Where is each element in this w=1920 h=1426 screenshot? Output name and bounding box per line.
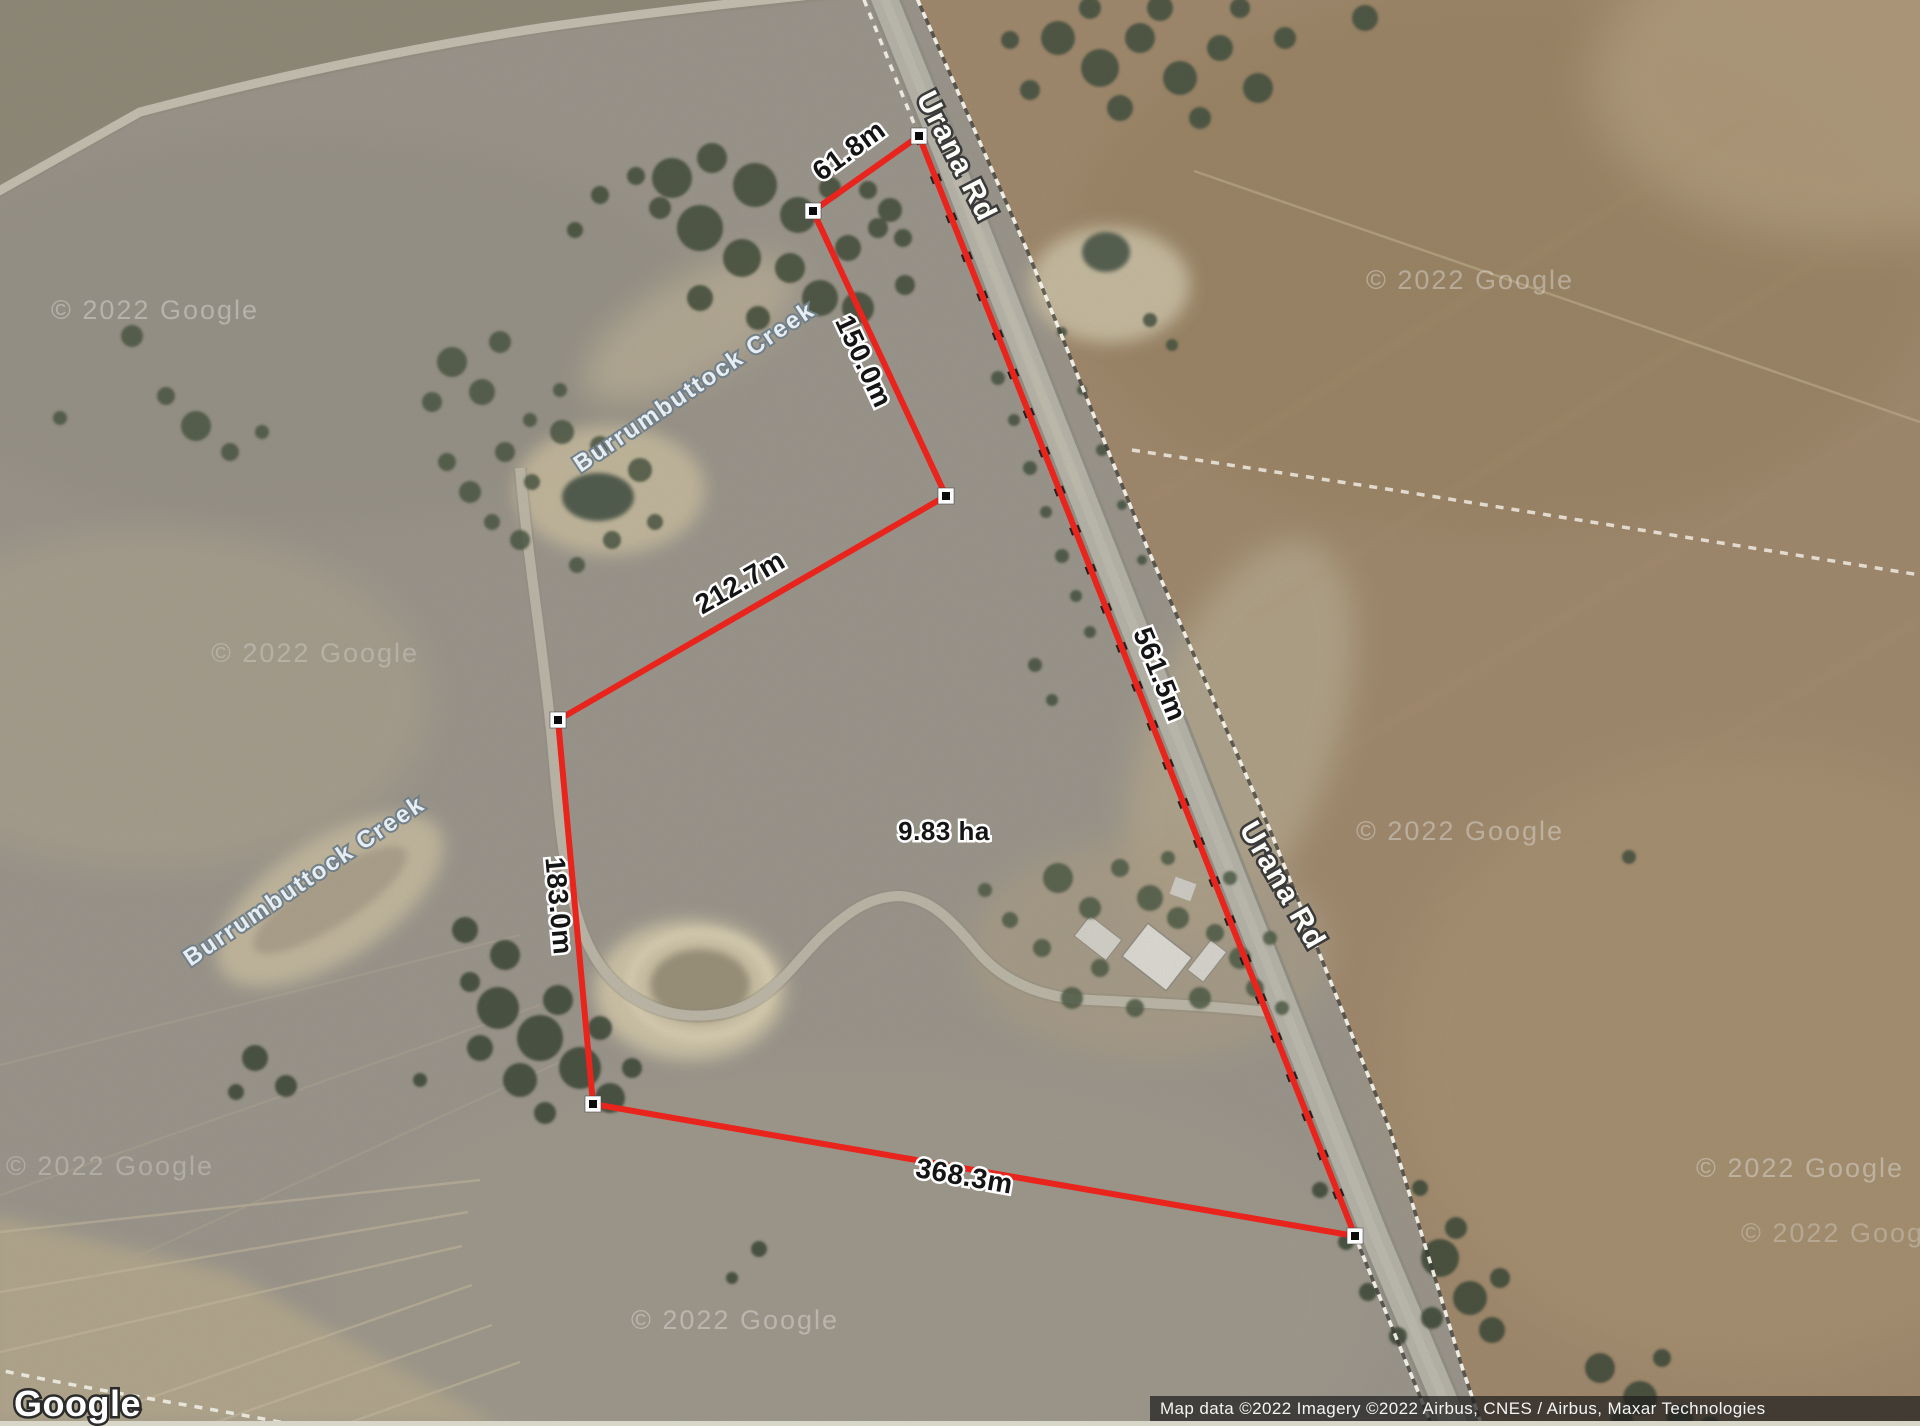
- map-bottom-edge: [0, 1421, 1920, 1426]
- area-label: 9.83 ha: [898, 816, 990, 846]
- vertex-marker[interactable]: [805, 203, 821, 219]
- imagery-grain: [0, 0, 1920, 1426]
- google-watermark: © 2022 Google: [1366, 265, 1574, 295]
- vertex-marker[interactable]: [1347, 1228, 1363, 1244]
- vertex-marker[interactable]: [585, 1096, 601, 1112]
- attribution-text[interactable]: Map data ©2022 Imagery ©2022 Airbus, CNE…: [1160, 1399, 1766, 1418]
- google-watermark: © 2022 Google: [51, 295, 259, 325]
- vertex-marker[interactable]: [911, 128, 927, 144]
- google-watermark: © 2022 Google: [631, 1305, 839, 1335]
- google-watermark: © 2022 Google: [211, 638, 419, 668]
- attribution-bar: Map data ©2022 Imagery ©2022 Airbus, CNE…: [1150, 1396, 1920, 1421]
- map-viewport[interactable]: Burrumbuttock Creek Burrumbuttock Creek …: [0, 0, 1920, 1426]
- google-logo[interactable]: Google: [14, 1383, 141, 1424]
- google-watermark: © 2022 Google: [1741, 1218, 1920, 1248]
- google-watermark: © 2022 Google: [1356, 816, 1564, 846]
- satellite-map: Burrumbuttock Creek Burrumbuttock Creek …: [0, 0, 1920, 1426]
- google-watermark: © 2022 Google: [6, 1151, 214, 1181]
- google-watermark: © 2022 Google: [1696, 1153, 1904, 1183]
- vertex-marker[interactable]: [550, 712, 566, 728]
- vertex-marker[interactable]: [938, 488, 954, 504]
